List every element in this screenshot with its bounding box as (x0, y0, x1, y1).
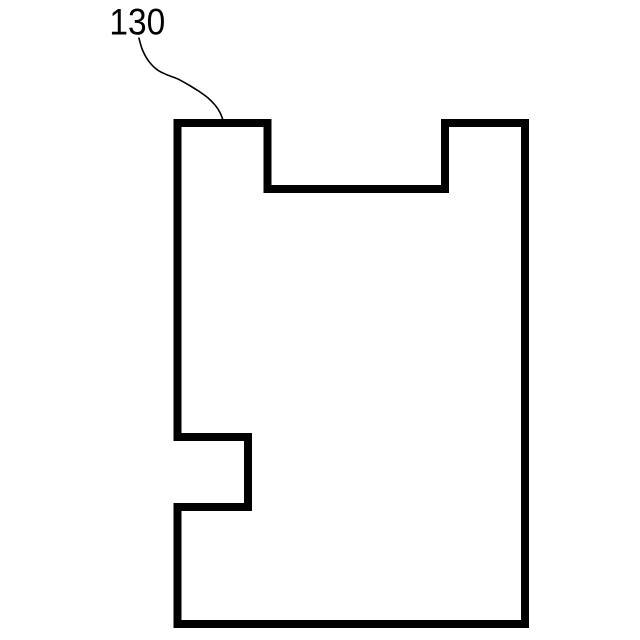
svg-text:130: 130 (109, 2, 165, 43)
